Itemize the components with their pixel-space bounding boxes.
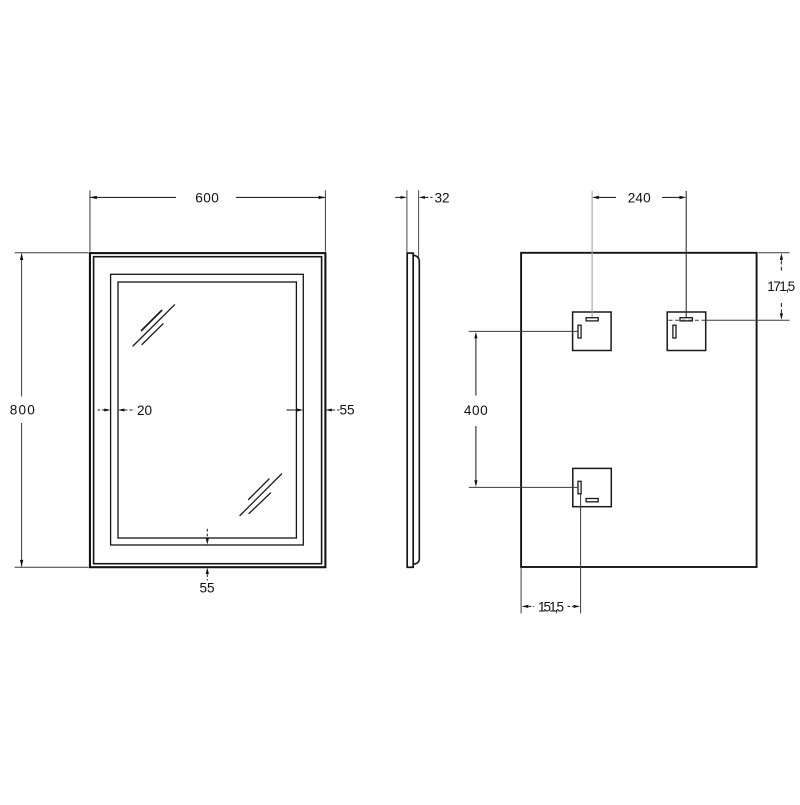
svg-text:240: 240 bbox=[628, 190, 651, 205]
svg-text:20: 20 bbox=[137, 403, 152, 418]
svg-text:32: 32 bbox=[435, 190, 450, 205]
svg-text:800: 800 bbox=[10, 402, 35, 417]
svg-text:171,5: 171,5 bbox=[767, 279, 795, 294]
svg-text:151,5: 151,5 bbox=[538, 599, 564, 614]
svg-text:55: 55 bbox=[200, 580, 215, 595]
svg-text:400: 400 bbox=[464, 403, 488, 418]
svg-text:55: 55 bbox=[340, 402, 355, 417]
svg-text:600: 600 bbox=[195, 190, 219, 205]
